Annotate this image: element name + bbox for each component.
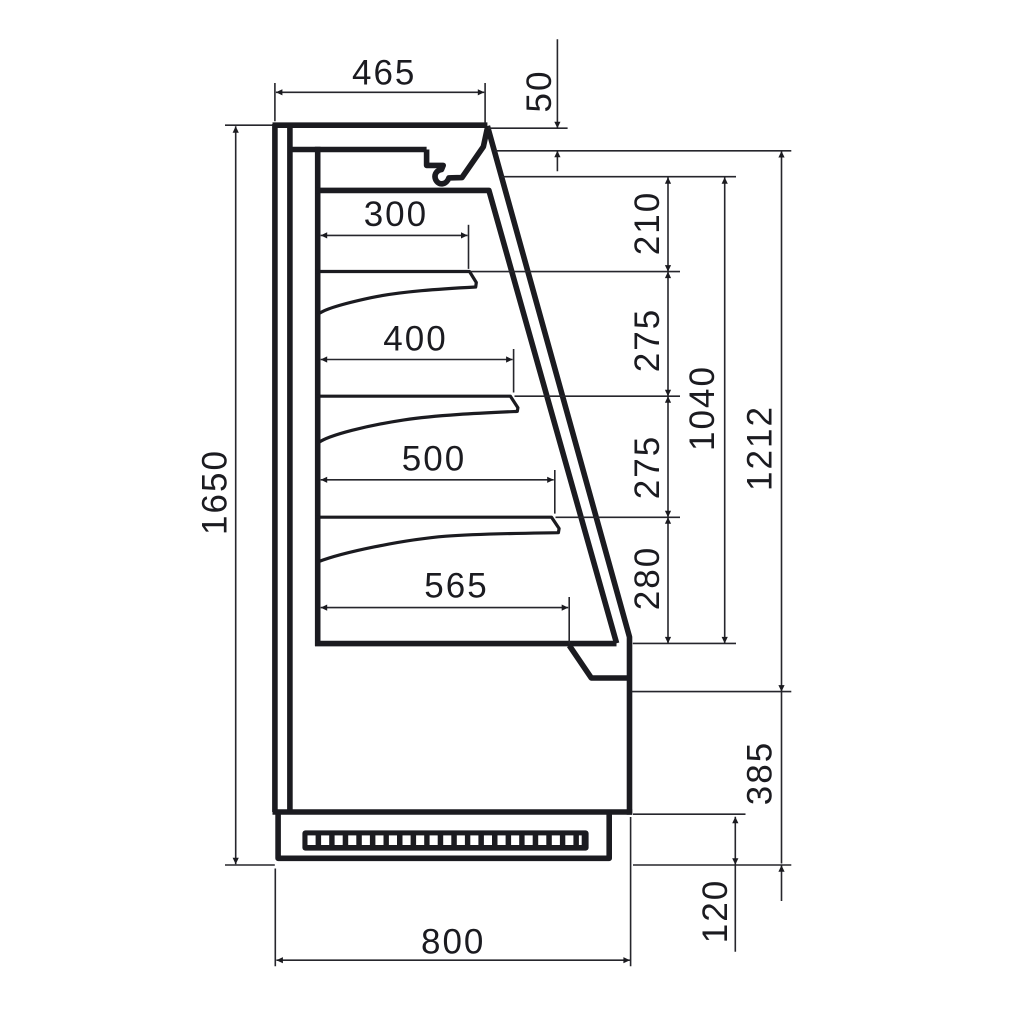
svg-text:465: 465 xyxy=(352,53,416,92)
svg-text:385: 385 xyxy=(741,741,780,805)
svg-text:275: 275 xyxy=(628,435,667,499)
svg-text:1650: 1650 xyxy=(196,449,235,535)
svg-text:275: 275 xyxy=(628,308,667,372)
svg-text:565: 565 xyxy=(424,567,488,606)
svg-text:300: 300 xyxy=(364,195,428,234)
svg-text:210: 210 xyxy=(628,191,667,255)
svg-text:50: 50 xyxy=(520,70,559,113)
svg-text:500: 500 xyxy=(402,440,466,479)
svg-text:1040: 1040 xyxy=(683,365,722,451)
svg-text:400: 400 xyxy=(383,319,447,358)
svg-text:800: 800 xyxy=(421,923,485,962)
svg-text:280: 280 xyxy=(628,546,667,610)
svg-text:120: 120 xyxy=(696,879,735,943)
svg-text:1212: 1212 xyxy=(741,405,780,491)
